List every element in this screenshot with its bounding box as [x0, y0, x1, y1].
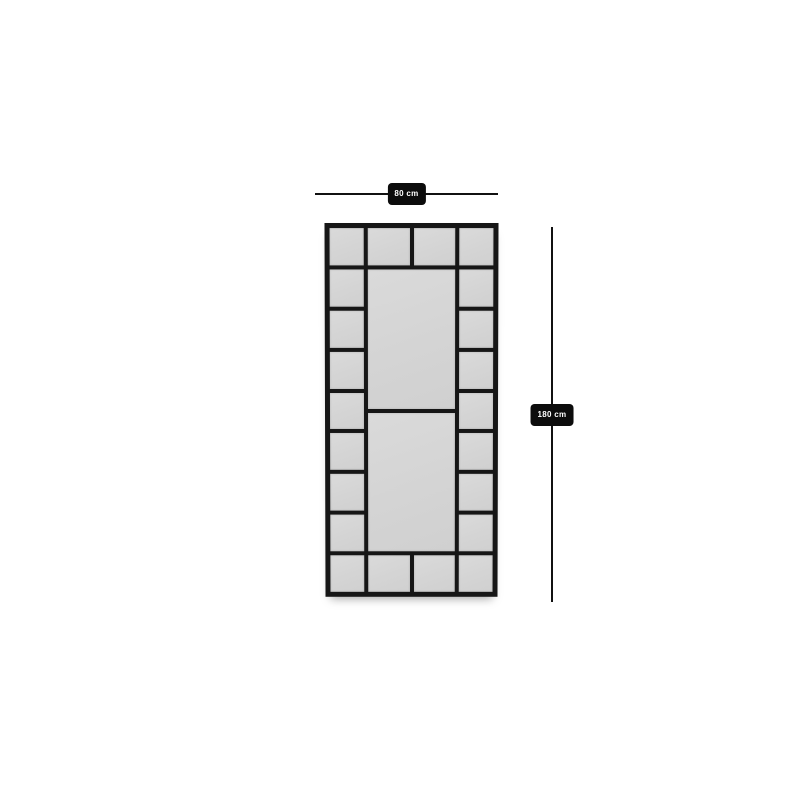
- product-dimension-diagram: 80 cm 180 cm: [0, 0, 800, 800]
- mirror-pane: [459, 515, 493, 552]
- mirror-pane: [330, 393, 364, 430]
- mirror-pane: [459, 352, 493, 389]
- mirror-pane: [330, 555, 364, 591]
- width-dimension: 80 cm: [315, 183, 498, 205]
- mirror-left-column: [330, 228, 365, 592]
- mirror-top-strip: [368, 228, 456, 265]
- mirror-pane: [330, 311, 364, 348]
- mirror-pane: [459, 555, 493, 591]
- mirror-pane: [330, 352, 364, 389]
- mirror-pane: [459, 393, 493, 430]
- mirror-pane: [330, 228, 364, 265]
- mirror-pane: [459, 433, 493, 470]
- mirror-pane: [459, 311, 493, 348]
- mirror-pane: [459, 474, 493, 511]
- mirror-pane: [368, 228, 410, 265]
- mirror-pane: [368, 555, 409, 592]
- mirror-pane: [330, 474, 364, 511]
- mirror-right-column: [459, 228, 494, 592]
- mirror-center-column: [368, 228, 456, 592]
- mirror-pane: [330, 269, 364, 306]
- mirror-pane: [368, 269, 455, 409]
- mirror-bottom-strip: [368, 555, 455, 592]
- mirror-pane: [459, 228, 493, 265]
- height-dimension: 180 cm: [541, 227, 563, 602]
- mirror-center-large-panes: [368, 269, 455, 551]
- width-dimension-label: 80 cm: [387, 183, 425, 205]
- mirror-pane: [459, 269, 493, 306]
- mirror-pane: [414, 228, 456, 265]
- mirror-pane: [413, 555, 454, 592]
- mirror-frame: [324, 223, 498, 597]
- mirror-pane: [330, 433, 364, 470]
- mirror-pane: [330, 515, 364, 552]
- height-dimension-label: 180 cm: [531, 404, 574, 426]
- mirror-pane: [368, 413, 455, 551]
